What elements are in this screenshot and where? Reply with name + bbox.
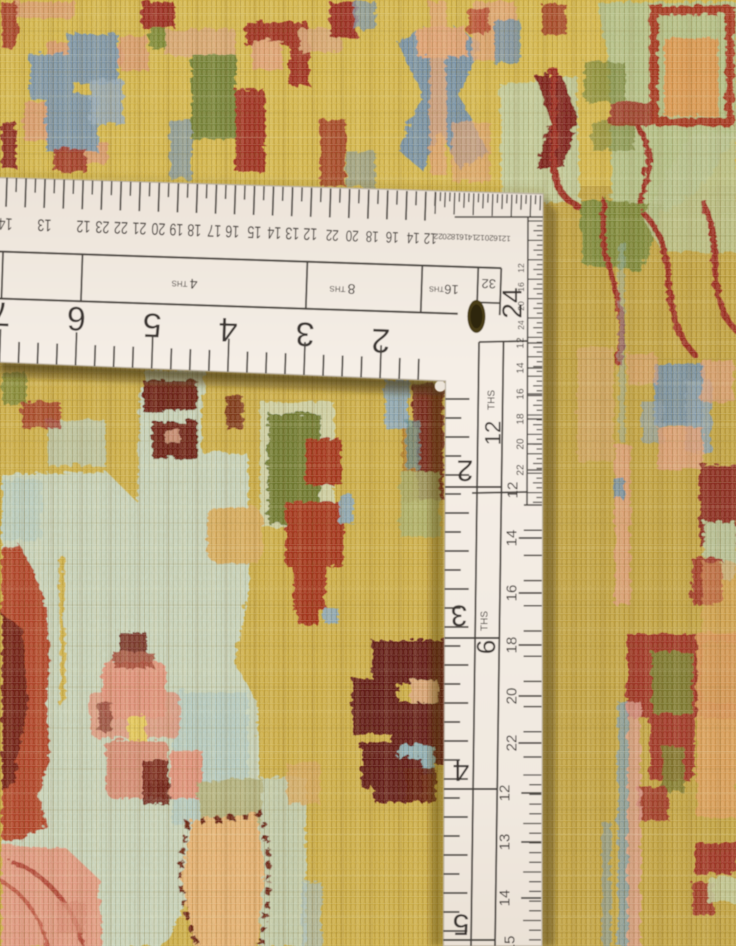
svg-text:32: 32: [481, 276, 496, 291]
svg-text:20: 20: [442, 232, 452, 241]
svg-text:2: 2: [457, 454, 474, 487]
svg-text:THS: THS: [329, 284, 345, 294]
svg-text:18: 18: [516, 413, 527, 425]
svg-text:19: 19: [169, 220, 184, 239]
svg-text:22: 22: [326, 226, 340, 243]
svg-text:21: 21: [132, 218, 147, 237]
svg-text:17: 17: [207, 221, 222, 240]
svg-text:15: 15: [502, 936, 519, 946]
svg-text:12: 12: [505, 482, 522, 499]
svg-text:14: 14: [406, 229, 420, 246]
svg-text:20: 20: [484, 233, 494, 242]
svg-text:18: 18: [365, 227, 379, 244]
svg-text:16: 16: [516, 282, 526, 292]
svg-text:14: 14: [267, 223, 282, 242]
svg-text:12: 12: [501, 234, 511, 243]
svg-text:12: 12: [481, 421, 506, 445]
svg-text:4: 4: [453, 754, 470, 787]
svg-text:13: 13: [37, 215, 52, 234]
svg-text:20: 20: [516, 301, 526, 311]
svg-text:7: 7: [0, 294, 11, 333]
svg-text:12: 12: [516, 337, 527, 349]
svg-text:15: 15: [247, 222, 262, 241]
svg-text:16: 16: [385, 228, 399, 245]
svg-text:22: 22: [504, 735, 521, 752]
svg-text:16: 16: [493, 233, 503, 242]
svg-text:12: 12: [475, 233, 485, 242]
svg-text:12: 12: [516, 263, 526, 273]
svg-text:14: 14: [0, 214, 13, 233]
svg-text:22: 22: [516, 464, 527, 476]
svg-text:22: 22: [114, 218, 129, 237]
svg-text:6: 6: [66, 299, 86, 338]
svg-text:22: 22: [433, 231, 443, 240]
svg-text:13: 13: [285, 223, 300, 242]
svg-text:14: 14: [497, 890, 514, 907]
svg-text:6: 6: [471, 640, 501, 654]
svg-text:14: 14: [467, 233, 477, 242]
svg-text:16: 16: [504, 585, 521, 602]
svg-text:12: 12: [497, 785, 514, 802]
svg-text:THS: THS: [429, 284, 444, 293]
svg-text:12: 12: [76, 217, 91, 236]
svg-text:20: 20: [151, 219, 166, 238]
svg-text:23: 23: [95, 217, 110, 236]
svg-text:14: 14: [504, 530, 521, 547]
svg-text:13: 13: [497, 834, 514, 851]
svg-text:24: 24: [516, 320, 526, 330]
svg-text:4: 4: [189, 276, 198, 292]
svg-text:20: 20: [345, 226, 359, 243]
svg-text:5: 5: [453, 908, 470, 941]
svg-text:THS: THS: [171, 279, 187, 289]
svg-text:16: 16: [225, 222, 240, 241]
svg-text:18: 18: [504, 637, 521, 654]
svg-text:14: 14: [516, 362, 527, 374]
svg-text:18: 18: [187, 220, 202, 239]
svg-text:THS: THS: [480, 611, 491, 631]
svg-text:16: 16: [444, 282, 459, 297]
svg-text:20: 20: [504, 688, 521, 705]
svg-text:3: 3: [451, 599, 468, 632]
svg-text:THS: THS: [487, 390, 498, 410]
svg-text:16: 16: [516, 388, 527, 400]
svg-text:16: 16: [459, 232, 469, 241]
svg-text:8: 8: [347, 281, 356, 297]
svg-text:18: 18: [450, 232, 460, 241]
svg-text:12: 12: [303, 224, 318, 243]
svg-text:20: 20: [516, 438, 527, 450]
